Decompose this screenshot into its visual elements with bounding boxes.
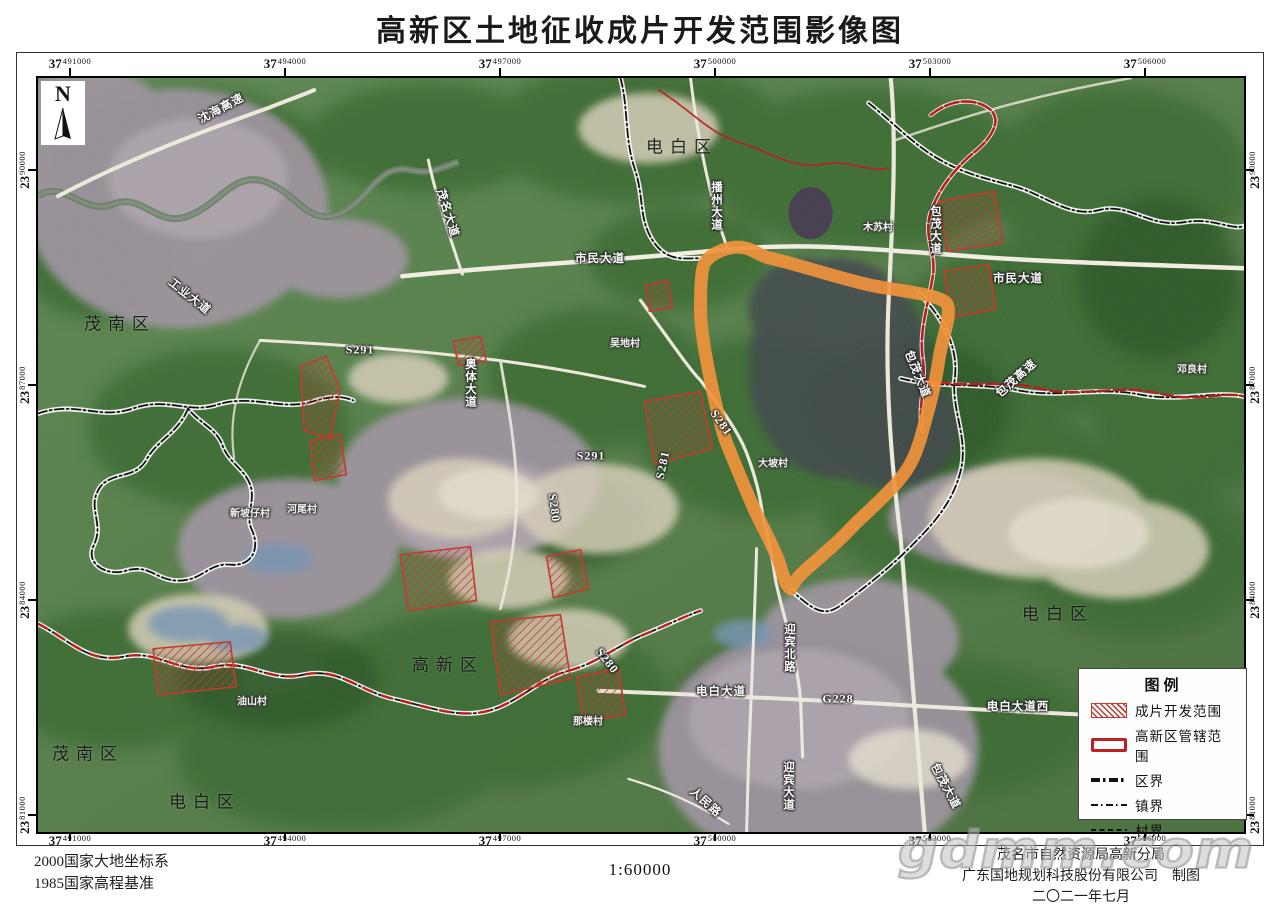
legend-swatch-dash-bold xyxy=(1091,778,1127,782)
legend-item-label: 高新区管辖范围 xyxy=(1135,725,1236,765)
legend-swatch-hatch xyxy=(1091,703,1127,718)
legend-item: 成片开发范围 xyxy=(1091,700,1236,720)
legend-item: 村界 xyxy=(1091,820,1236,840)
axis-tick-left xyxy=(28,384,36,386)
axis-tick-top xyxy=(1144,68,1146,76)
legend-title: 图例 xyxy=(1091,674,1236,695)
legend-swatch-redbox xyxy=(1091,738,1127,752)
road-label: 电白大道 xyxy=(696,683,746,699)
legend-swatch-dash-mid xyxy=(1091,804,1127,807)
road-label: 播州大道 xyxy=(708,181,724,231)
district-label: 高新区 xyxy=(412,651,484,676)
village-label: 邓良村 xyxy=(1177,361,1207,376)
village-label: 油山村 xyxy=(237,693,267,708)
credits: 茂名市自然资源局高新分局 广东国地规划科技股份有限公司制图 二〇二一年七月 xyxy=(915,845,1247,906)
axis-tick-right xyxy=(1246,814,1254,816)
axis-tick-top xyxy=(929,68,931,76)
axis-tick-top xyxy=(69,68,71,76)
legend-item-label: 镇界 xyxy=(1135,795,1164,815)
road-label: S291 xyxy=(577,449,606,464)
axis-tick-right xyxy=(1246,599,1254,601)
axis-tick-left xyxy=(28,599,36,601)
district-label: 电白区 xyxy=(169,788,241,813)
road-label: 市民大道 xyxy=(993,270,1043,286)
legend-item: 镇界 xyxy=(1091,795,1236,815)
legend: 图例 成片开发范围高新区管辖范围区界镇界村界 xyxy=(1078,668,1247,820)
axis-tick-left xyxy=(28,814,36,816)
axis-tick-bottom xyxy=(929,833,931,841)
village-label: 木苏村 xyxy=(863,219,893,234)
road-label: 奥体大道 xyxy=(462,358,478,408)
axis-tick-right xyxy=(1246,384,1254,386)
axis-tick-bottom xyxy=(69,833,71,841)
axis-tick-left xyxy=(28,169,36,171)
district-label: 茂南区 xyxy=(52,740,124,765)
road-label: S291 xyxy=(346,343,375,358)
credit-line2: 广东国地规划科技股份有限公司制图 xyxy=(915,866,1247,887)
legend-item: 高新区管辖范围 xyxy=(1091,725,1236,765)
village-label: 新坡仔村 xyxy=(230,505,270,520)
road-label: 迎宾大道 xyxy=(780,761,796,811)
axis-tick-top xyxy=(714,68,716,76)
page: 高新区土地征收成片开发范围影像图 xyxy=(0,0,1280,906)
legend-item-label: 成片开发范围 xyxy=(1135,700,1222,720)
axis-tick-top xyxy=(499,68,501,76)
axis-tick-top xyxy=(284,68,286,76)
road-label: 市民大道 xyxy=(575,250,625,266)
satellite-imagery xyxy=(38,78,1244,832)
credit-maker: 制图 xyxy=(1172,869,1200,884)
road-label: G228 xyxy=(822,692,853,707)
map-area: 电白区茂南区茂南区电白区高新区电白区沈海高速工业大道茂名大道市民大道市民大道播州… xyxy=(36,76,1246,834)
district-label: 茂南区 xyxy=(84,310,156,335)
north-label: N xyxy=(55,82,71,106)
road-label: 电白大道西 xyxy=(987,698,1050,714)
axis-tick-bottom xyxy=(714,833,716,841)
district-label: 电白区 xyxy=(1022,600,1094,625)
legend-swatch-dash-fine xyxy=(1091,829,1127,831)
legend-item: 区界 xyxy=(1091,770,1236,790)
legend-item-label: 村界 xyxy=(1135,820,1164,840)
village-label: 吴地村 xyxy=(610,335,640,350)
village-label: 河尾村 xyxy=(287,501,317,516)
road-label: 迎宾北路 xyxy=(781,623,797,673)
road-label: 包茂大道 xyxy=(927,205,943,255)
credit-line1: 茂名市自然资源局高新分局 xyxy=(915,845,1247,866)
legend-item-label: 区界 xyxy=(1135,770,1164,790)
village-label: 那楼村 xyxy=(573,713,603,728)
legend-items: 成片开发范围高新区管辖范围区界镇界村界 xyxy=(1091,700,1236,840)
axis-tick-bottom xyxy=(499,833,501,841)
district-label: 电白区 xyxy=(646,133,718,158)
credit-company: 广东国地规划科技股份有限公司 xyxy=(962,869,1158,884)
axis-tick-bottom xyxy=(284,833,286,841)
axis-tick-right xyxy=(1246,169,1254,171)
village-label: 大坡村 xyxy=(758,455,788,470)
north-arrow: N xyxy=(40,80,86,146)
compass-needle-icon xyxy=(52,106,74,142)
credit-line3: 二〇二一年七月 xyxy=(915,887,1247,906)
page-title: 高新区土地征收成片开发范围影像图 xyxy=(0,6,1280,50)
